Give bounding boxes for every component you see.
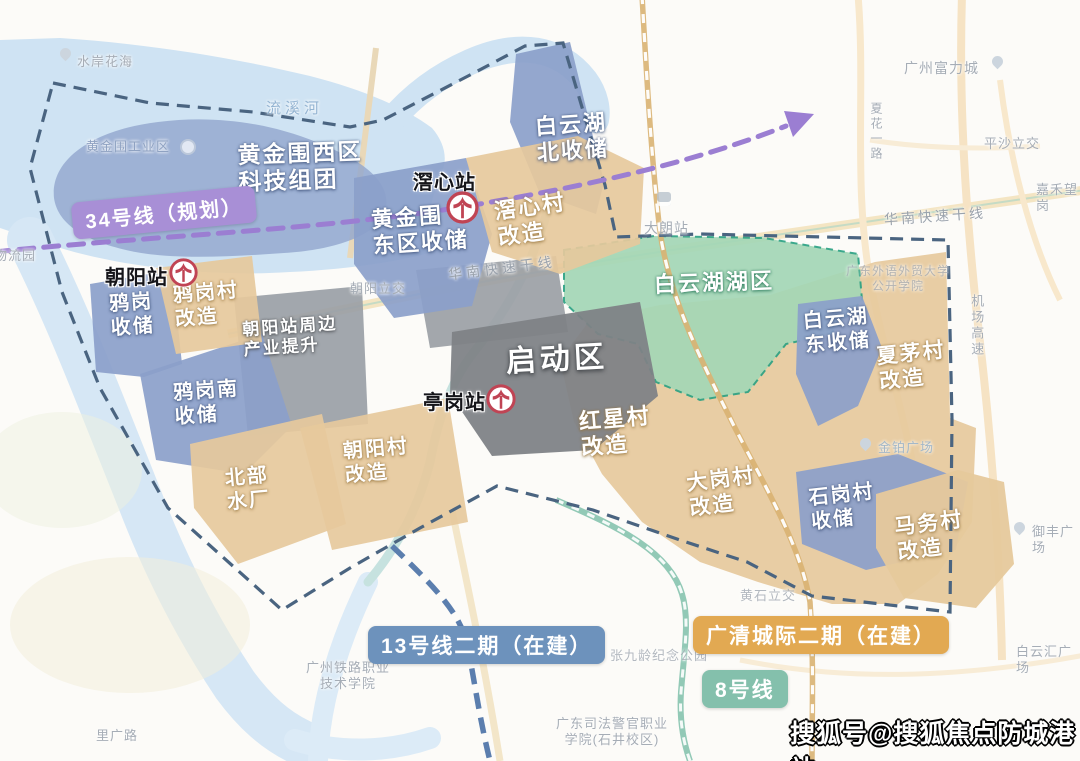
zone-label-byh-north-storage: 白云湖 北收储: [534, 110, 609, 167]
station-label-chaoyang: 朝阳站: [105, 261, 168, 290]
planning-map: 水岸花海 流溪河 黄金围工业区 物流园 朝阳立交 华南快速干线 华南快速干线 广…: [0, 0, 1080, 761]
poi-jiahe: 嘉禾望岗: [1036, 182, 1080, 215]
watermark-sohu: 搜狐号@搜狐焦点防城港站: [790, 714, 1080, 761]
badge-line13-phase2: 13号线二期（在建）: [368, 626, 605, 664]
badge-line8: 8号线: [702, 670, 788, 708]
zone-label-qidong-core: 启动区: [505, 339, 609, 380]
zone-label-north-plant: 北部 水厂: [224, 464, 272, 515]
road-label-xiahua: 夏花一路: [868, 102, 883, 162]
poi-shuian-huahai: 水岸花海: [77, 54, 133, 70]
zone-label-shigang-storage: 石岗村 收储: [808, 481, 879, 535]
zone-label-dagang-village: 大岗村 改造: [685, 464, 760, 522]
poi-wuliuyuan: 物流园: [0, 248, 36, 264]
poi-baiyunhui-plaza: 白云汇广场: [1016, 644, 1080, 677]
poi-chaoyang-interchange: 朝阳立交: [350, 281, 406, 297]
poi-pingsha: 平沙立交: [984, 136, 1040, 152]
zone-label-jiaoxin-village: 滘心村 改造: [493, 189, 572, 250]
poi-jinbo-plaza: 金铂广场: [878, 440, 934, 456]
poi-dalang-station: 大朗站: [644, 220, 689, 238]
poi-sifa-college: 广东司法警官职业 学院(石井校区): [556, 716, 668, 749]
poi-hjw-industry: 黄金围工业区: [86, 139, 170, 155]
poi-zhangjiuling-park: 张九龄纪念公园: [610, 648, 708, 664]
railway-station-icon: [657, 192, 671, 206]
zone-label-xiamao-village: 夏茅村 改造: [876, 339, 950, 395]
badge-gq-intercity-phase2: 广清城际二期（在建）: [693, 616, 949, 654]
poi-gz-fuli: 广州富力城: [904, 60, 979, 78]
zone-label-hongxing-village: 红星村 改造: [578, 403, 654, 461]
poi-liuxi-river: 流溪河: [266, 100, 323, 119]
zone-label-hjw-west-tech: 黄金围西区 科技组团: [237, 138, 364, 197]
poi-tielu-college: 广州铁路职业 技术学院: [306, 660, 390, 693]
line34-arrowhead: [784, 111, 814, 137]
poi-huangshi-interchange: 黄石立交: [740, 588, 796, 604]
zone-label-mawu-village: 马务村 改造: [893, 508, 968, 566]
zone-label-chaoyang-village: 朝阳村 改造: [342, 435, 412, 488]
road-label-airport-expwy: 机场高速: [968, 294, 984, 358]
road-label-liguang: 里广路: [96, 728, 138, 744]
metro-station-icon: [169, 258, 198, 292]
land-patch: [10, 557, 250, 693]
zone-label-yagang-storage: 鸦岗 收储: [108, 291, 155, 341]
zone-label-uplift: 朝阳站周边 产业提升: [242, 314, 340, 361]
zone-label-byh-east-storage: 白云湖 东收储: [802, 305, 872, 358]
zone-label-lake-district: 白云湖湖区: [654, 268, 775, 298]
station-label-tinggang: 亭岗站: [423, 386, 486, 415]
poi-gdufs: 广东外语外贸大学 公开学院: [846, 264, 950, 294]
industry-area-icon: [180, 139, 196, 155]
zone-label-yagang-south-storage: 鸦岗南 收储: [172, 378, 241, 430]
metro-station-icon: [446, 191, 479, 229]
metro-station-icon: [486, 384, 516, 419]
poi-yufeng-plaza: 御丰广场: [1032, 524, 1080, 557]
